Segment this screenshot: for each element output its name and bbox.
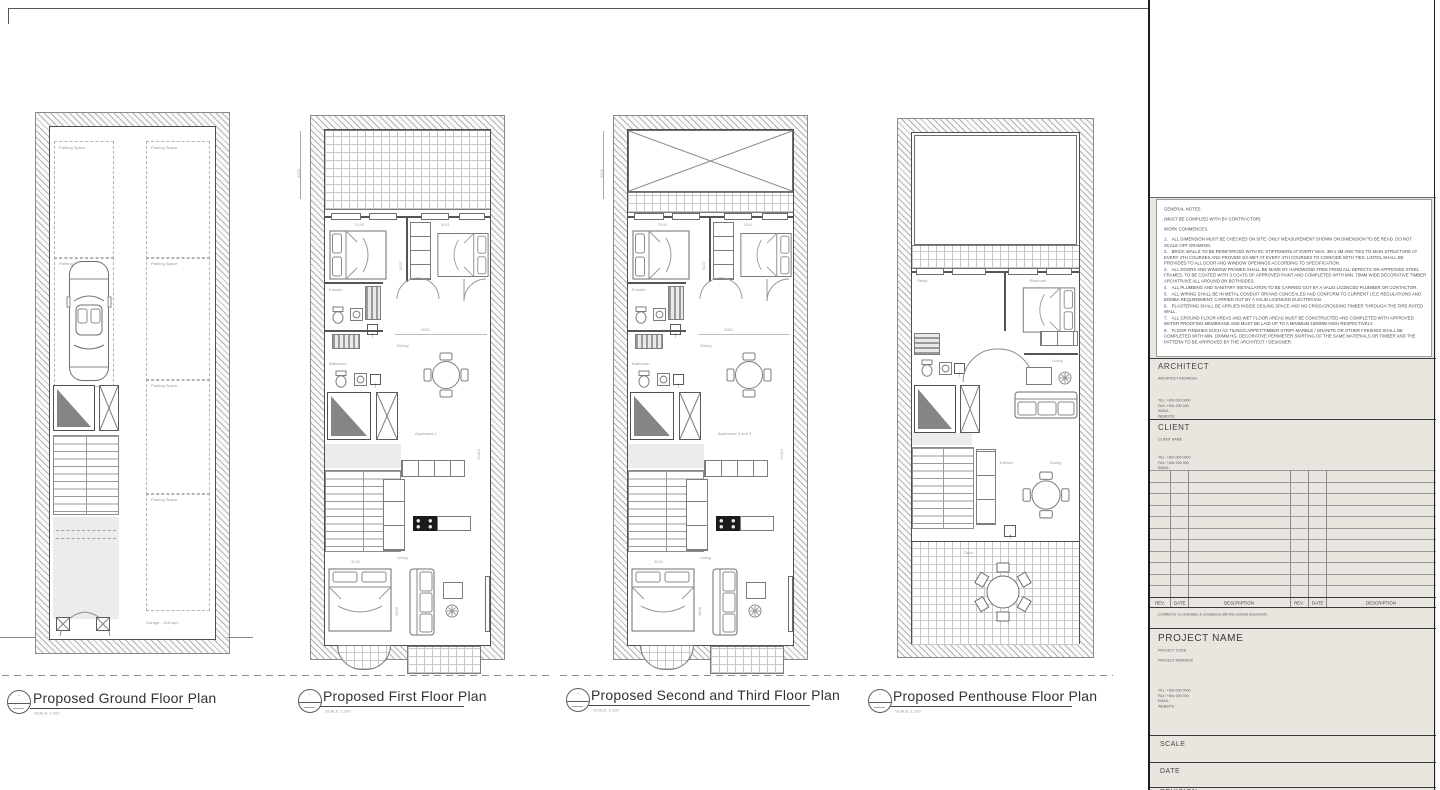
parking-space-6: Parking Space [146,493,210,611]
bedroom-divider-wall [406,216,408,282]
architect-contact: TEL: +60x 000 0000 FAX: +60x 000 000 EMA… [1158,398,1191,419]
note-text: ALL PLUMBING AND SANITARY INSTALLATION T… [1172,285,1418,290]
table-col-line [1308,470,1309,608]
window [672,213,700,220]
void-x-icon [629,131,792,191]
wall [325,282,383,284]
table-row-line [1150,516,1436,517]
rev-header: REV. [1155,600,1166,605]
window [634,213,664,220]
wall [628,282,686,284]
table-col-line [1188,470,1189,608]
door-swing [395,276,441,300]
title-underline [588,705,810,706]
stove-icon [716,516,740,531]
balcony-tiles [628,192,793,213]
shelf [1024,353,1078,355]
window [1046,268,1072,275]
penthouse-interior: Study Bedroom ↑ [911,132,1080,644]
dim-13410: 13410 [780,449,784,460]
balcony-tiles [325,130,490,210]
description-header: DESCRIPTION [1351,600,1412,605]
section-line [1150,197,1436,198]
scale-note: SCALE: 1:100 [895,709,921,714]
wall [628,330,686,332]
dashed-separator [560,675,1113,676]
kitchen-counter [383,479,405,551]
section-line [1150,762,1436,763]
kitchen-island [437,516,471,531]
section-line [1150,735,1436,736]
sheet-border-right [1434,0,1435,790]
dining-table-icon [726,352,772,398]
apartment-floor-interior: 3140 3011 5137 Ensuite [324,129,491,646]
tv-console [746,582,766,599]
sink-icon [939,362,952,375]
dim-3800: 3800 [698,607,702,616]
dining-table-icon [1022,471,1070,519]
note-item: 3.ALL DOORS AND WINDOW FRAMES SHALL BE M… [1164,267,1427,284]
note-number: 4. [1164,285,1172,291]
section-line [1150,419,1436,420]
architect-address: ARCHITECT ADDRESS [1158,376,1197,381]
staircase [912,447,974,529]
note-item: 6.PLASTERING SHALL BE APPLIED INSIDE CEI… [1164,303,1427,315]
wall [325,330,383,332]
shaft-x-icon [377,393,397,439]
dashed-line [56,530,116,531]
garage-label: Garage - 108 sqm [146,621,179,625]
penthouse-floor-plan: Study Bedroom ↑ [897,118,1094,658]
shaft-x-icon [961,386,979,432]
sofa-icon [712,568,738,636]
duct-shaft [960,385,980,433]
revision-table-header: REV. DATE DESCRIPTION REV. DATE DESCRIPT… [1150,597,1436,608]
door-swing [766,278,790,302]
shower [668,286,684,320]
shower [365,286,381,320]
entrance-hall [53,517,119,619]
parking-space-label: Parking Space [59,146,85,150]
door-swing [960,345,1036,383]
door-threshold: ↑ [673,374,684,385]
landing [325,444,401,468]
dining-label: Dining [397,344,408,348]
window [724,213,752,220]
client-name: CLIENT NAME [1158,437,1182,442]
note-number: 5. [1164,291,1172,297]
staircase [53,435,119,515]
dashed-line [56,538,116,539]
toilet-icon [637,370,651,388]
dim-3011: 3011 [744,223,753,227]
first-floor-plan: 3000 3140 3011 [310,115,505,660]
door-threshold: ↑ [1004,525,1016,537]
table-row-line [1150,562,1436,563]
dim-3140: 3140 [355,223,364,227]
penthouse-plan-title: Proposed Penthouse Floor Plan [893,688,1097,704]
window [762,213,788,220]
sheet-border-left [8,8,9,24]
wardrobe [713,222,734,280]
window [916,268,944,275]
bathroom-label: Bathroom [632,362,650,366]
dim-5137: 5137 [702,261,706,270]
note-item: 8.FLOOR FINISHES SUCH AS TILING/CARPET/T… [1164,327,1427,344]
window [459,213,485,220]
note-item: 5.ALL WIRING SHALL BE IN METAL CONDUIT O… [1164,291,1427,303]
rev-header: REV. [1294,600,1304,605]
bubble-number: - [302,691,317,697]
bed-icon [329,230,387,280]
table-col-line [1170,470,1171,608]
scale-note: SCALE: 1:100 [325,709,351,714]
column [96,617,110,631]
parking-space-label: Parking Space [151,498,177,502]
dining-label: Dining [1050,461,1061,465]
ground-plan-title: Proposed Ground Floor Plan [33,690,216,706]
parking-space-5: Parking Space [146,379,210,495]
apartment-floor-interior: 3140 3011 5137 Ensuite [627,129,794,646]
note-number: 1. [1164,236,1172,242]
living-label: Living [397,556,408,560]
sofa-icon [1014,391,1078,419]
table-row-line [1150,585,1436,586]
door-swing [463,278,487,302]
dim-3000: 3000 [297,169,301,178]
wall [1004,271,1006,331]
deck-label: Deck [964,551,973,555]
bathroom-cabinet [332,334,360,349]
note-text: PLASTERING SHALL BE APPLIED INSIDE CEILI… [1164,303,1423,314]
kitchen-counter [976,449,996,525]
toilet-icon [331,306,345,324]
bed-icon [632,230,690,280]
date-field-label: DATE [1160,768,1180,775]
ensuite-label: Ensuite [329,288,343,292]
sink-icon [350,308,363,321]
table-row-line [1150,539,1436,540]
ground-line [227,637,253,638]
wardrobe [914,333,940,355]
shaft-x-icon [100,386,118,430]
scale-field-label: SCALE [1160,741,1185,748]
window [485,576,490,632]
apartment-label: Apartment 1 [415,432,437,436]
sofa-icon [409,568,435,636]
wardrobe [410,222,431,280]
study-label: Study [917,279,927,283]
table-col-line [1290,470,1291,608]
note-item: 4.ALL PLUMBING AND SANITARY INSTALLATION… [1164,285,1427,291]
parking-space-1: Parking Space [54,141,114,259]
landing [912,433,972,445]
description-header: DESCRIPTION [1211,600,1267,605]
date-header: DATE [1174,600,1184,605]
date-header: DATE [1312,600,1322,605]
kitchen-cabinets [401,460,465,477]
second-third-plan-title: Proposed Second and Third Floor Plan [591,687,840,703]
project-code: PROJECT CODE [1158,648,1186,653]
note-text: ALL DOORS AND WINDOW FRAMES SHALL BE MAD… [1164,267,1426,283]
table-row-line [1150,551,1436,552]
up-arrow-icon: ↑ [371,332,375,339]
table-row-line [1150,574,1436,575]
section-line [1150,787,1436,788]
window [788,576,793,632]
note-text: BRICK WALLS TO BE REINFORCED WITH RC STI… [1164,249,1417,265]
bed-icon [631,568,695,632]
title-underline [30,708,193,709]
note-number: 7. [1164,315,1172,321]
project-website: WEBSITE: [1158,704,1191,709]
table-row-line [1150,528,1436,529]
general-notes-box: GENERAL NOTES (MUST BE COMPLIED WITH BY … [1156,199,1432,357]
table-row-line [1150,505,1436,506]
project-name-heading: PROJECT NAME [1158,633,1243,644]
note-text: ALL GROUND FLOOR AREAS AND WET FLOOR ARE… [1164,316,1414,327]
parking-space-label: Parking Space [151,262,177,266]
outdoor-table-icon [970,559,1036,625]
parking-space-label: Parking Space [151,146,177,150]
door-swing [698,276,744,300]
note-text: ALL WIRING SHALL BE IN METAL CONDUIT OR/… [1164,291,1421,302]
parking-space-4: Parking Space [146,257,210,381]
note-item: 7.ALL GROUND FLOOR AREAS AND WET FLOOR A… [1164,315,1427,327]
bubble-number: - [11,692,26,698]
bench-seat [1040,331,1078,346]
note-text: FLOOR FINISHES SUCH AS TILING/CARPET/TIM… [1164,328,1416,344]
parking-space-3: Parking Space [146,141,210,259]
architect-heading: ARCHITECT [1158,362,1209,371]
tv-console [443,582,463,599]
car-icon [67,259,111,383]
title-block: GENERAL NOTES (MUST BE COMPLIED WITH BY … [1148,0,1436,790]
dim-line [395,334,487,335]
title-underline [890,706,1072,707]
sink-icon [653,308,666,321]
dashed-separator [2,675,552,676]
dim-4061: 4061 [724,328,733,332]
elevator [53,385,95,431]
plant-icon [748,604,762,618]
section-line [1150,628,1436,629]
parking-space-label: Parking Space [151,384,177,388]
ground-floor-interior: Parking Space Parking Space [49,126,216,640]
sink-icon [354,373,367,386]
bathroom-label: Bathroom [329,362,347,366]
living-label: Living [1052,359,1063,363]
drawing-sheet: Parking Space Parking Space [0,0,1440,790]
kitchen-island [740,516,774,531]
tv-console [1026,367,1052,385]
dim-3032: 3032 [654,560,663,564]
note-number: 2. [1164,249,1172,255]
bed-icon [328,568,392,632]
bedroom-divider-wall [709,216,711,282]
scale-note: SCALE: 1:100 [34,711,60,716]
second-third-floor-plan: 3000 3140 3011 [613,115,808,660]
kitchen-label: Kitchen [1000,461,1014,465]
door-threshold: ↑ [370,374,381,385]
bubble-number: - [872,691,887,697]
void-area [628,130,793,192]
duct-shaft [99,385,119,431]
dim-line [698,334,790,335]
ensuite-label: Ensuite [632,288,646,292]
dim-3000: 3000 [600,169,604,178]
drawing-ref-bubble: - [298,689,322,713]
table-row-line [1150,482,1436,483]
general-notes-text: GENERAL NOTES (MUST BE COMPLIED WITH BY … [1164,206,1427,345]
scale-note: SCALE: 1:100 [593,708,619,713]
table-row-line [1150,493,1436,494]
note-number: 6. [1164,303,1172,309]
window [331,213,361,220]
title-underline [320,706,464,707]
dim-3140: 3140 [658,223,667,227]
dim-5137: 5137 [399,261,403,270]
shaft-x-icon [680,393,700,439]
window [952,268,986,275]
project-address: PROJECT ADDRESS [1158,658,1193,663]
client-heading: CLIENT [1158,423,1190,432]
project-contact: TEL: +60x 000 0000 FAX: +60x 000 000 EMA… [1158,688,1191,709]
note-item: 2.BRICK WALLS TO BE REINFORCED WITH RC S… [1164,249,1427,266]
note-item: 1.ALL DIMENSION MUST BE CHECKED ON SITE.… [1164,236,1427,248]
dim-3800: 3800 [395,607,399,616]
first-plan-title: Proposed First Floor Plan [323,688,487,704]
duct-shaft [679,392,701,440]
toilet-icon [634,306,648,324]
sink-icon [657,373,670,386]
table-col-line [1326,470,1327,608]
dim-line [300,131,301,199]
landing [628,444,704,468]
terrace-tiles [912,245,1079,269]
dining-table-icon [423,352,469,398]
drawing-ref-bubble: - [868,689,892,713]
elevator [914,385,956,433]
rear-balcony [407,646,481,674]
bed-icon [740,230,792,280]
dim-13410: 13410 [477,449,481,460]
roof-terrace [914,135,1077,245]
stove-icon [413,516,437,531]
up-arrow-icon: ↑ [674,332,678,339]
certified-note: Certified for co-ordination & compliance… [1158,612,1268,617]
column [56,617,70,631]
apartment-label: Apartment 2 and 3 [718,432,751,436]
bubble-number: - [570,690,585,696]
up-arrow-icon: ↑ [1008,533,1012,540]
living-label: Living [700,556,711,560]
note-number: 3. [1164,267,1172,273]
bay-window [337,645,391,670]
ground-line [0,637,36,638]
plant-icon [1058,371,1072,385]
bed-icon [1022,287,1076,333]
toilet-icon [334,370,348,388]
dim-3032: 3032 [351,560,360,564]
ground-floor-plan: Parking Space Parking Space [35,112,230,654]
dim-4061: 4061 [421,328,430,332]
bed-icon [437,230,489,280]
duct-shaft [376,392,398,440]
up-arrow-icon: ↑ [374,382,378,389]
window [421,213,449,220]
window [369,213,397,220]
note-number: 8. [1164,327,1172,333]
client-contact: TEL: +60x 000 0000 FAX: +60x 000 000 EMA… [1158,455,1191,471]
bathroom-cabinet [635,334,663,349]
up-arrow-icon: ↑ [677,382,681,389]
bedroom-label: Bedroom [1030,279,1046,283]
dining-label: Dining [700,344,711,348]
kitchen-cabinets [704,460,768,477]
drawing-ref-bubble: - [566,688,590,712]
elevator [630,392,674,440]
elevator [327,392,371,440]
column-x-icon [97,618,109,630]
window [1008,268,1038,275]
section-line [1150,358,1436,359]
bay-window [640,645,694,670]
rear-balcony [710,646,784,674]
kitchen-counter [686,479,708,551]
column-x-icon [57,618,69,630]
dim-3011: 3011 [441,223,450,227]
drawing-ref-bubble: - [7,690,31,714]
plant-icon [445,604,459,618]
table-row-line [1150,470,1436,471]
toilet-icon [920,359,934,377]
note-text: ALL DIMENSION MUST BE CHECKED ON SITE. O… [1164,237,1412,248]
dim-line [603,131,604,199]
